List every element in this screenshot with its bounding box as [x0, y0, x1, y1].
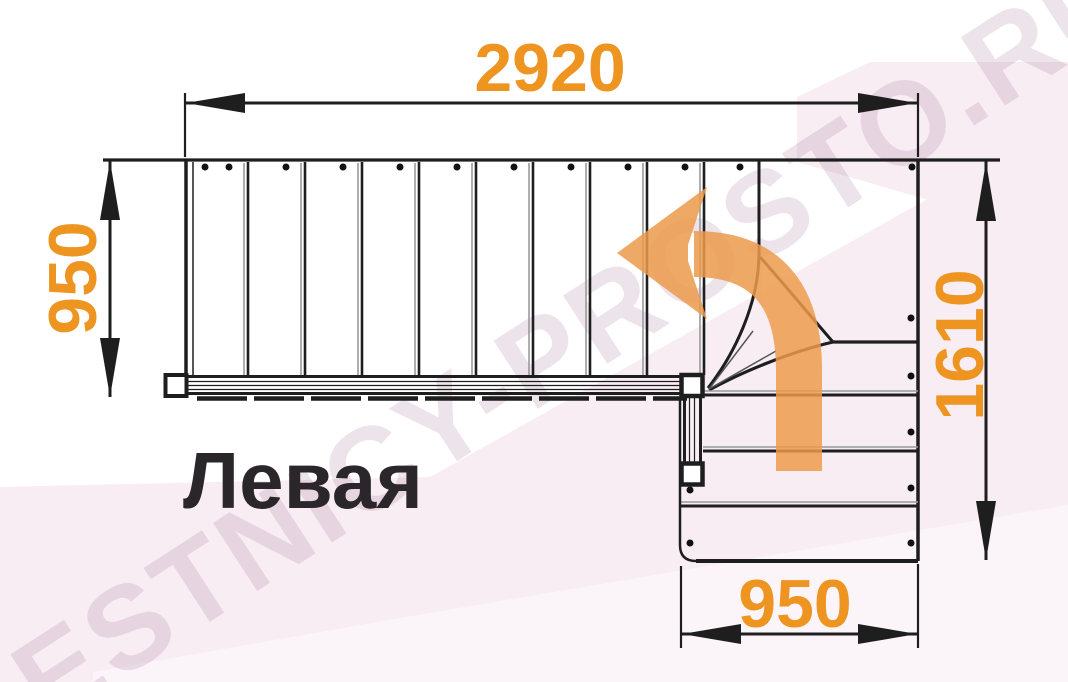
- drawing-svg: LESTNICY-PROSTO.RU: [0, 0, 1068, 682]
- dimension-top-value: 2920: [474, 30, 625, 106]
- dimension-left-value: 950: [35, 221, 111, 334]
- newel-post-corner: [682, 375, 703, 396]
- dimension-right-value: 1610: [922, 269, 998, 420]
- stair-plan-drawing: LESTNICY-PROSTO.RU: [0, 0, 1068, 682]
- dimension-bottom-value: 950: [738, 566, 851, 642]
- newel-post-bottom: [682, 464, 703, 485]
- newel-post-left: [166, 375, 187, 396]
- plan-title-label: Левая: [183, 436, 423, 525]
